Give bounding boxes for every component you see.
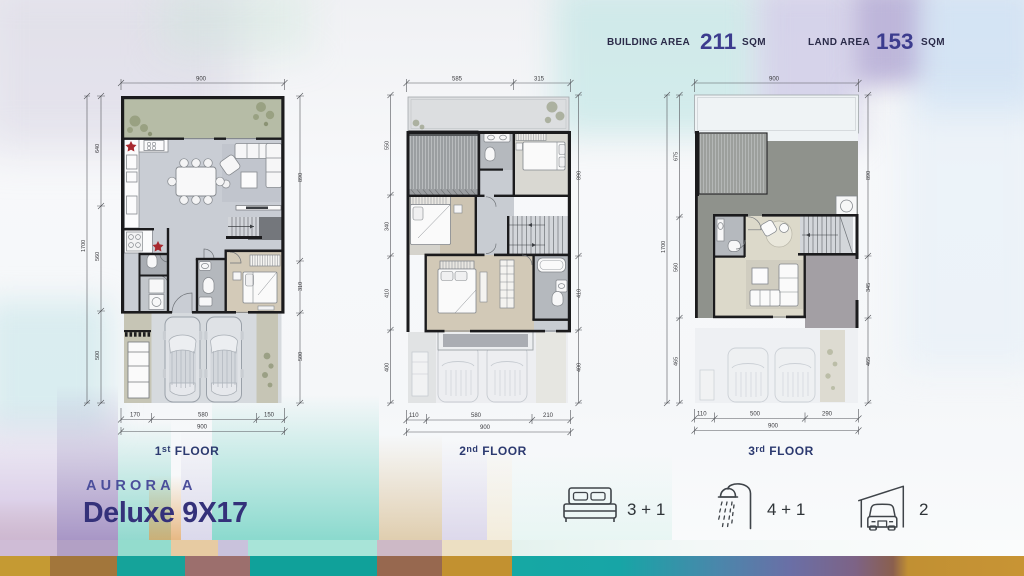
svg-text:900: 900 xyxy=(196,77,207,83)
svg-text:900: 900 xyxy=(480,425,491,431)
svg-text:315: 315 xyxy=(534,77,545,83)
svg-text:310: 310 xyxy=(298,282,304,291)
svg-text:1700: 1700 xyxy=(661,241,667,253)
svg-text:580: 580 xyxy=(471,413,482,419)
svg-text:890: 890 xyxy=(298,173,304,182)
svg-text:290: 290 xyxy=(822,412,833,418)
svg-text:1700: 1700 xyxy=(81,240,87,252)
svg-text:550: 550 xyxy=(385,141,391,150)
svg-text:580: 580 xyxy=(198,413,209,419)
svg-text:900: 900 xyxy=(197,425,208,431)
svg-text:900: 900 xyxy=(769,77,780,83)
svg-text:150: 150 xyxy=(264,413,275,419)
svg-text:400: 400 xyxy=(385,363,391,372)
svg-text:585: 585 xyxy=(452,77,463,83)
svg-text:110: 110 xyxy=(697,412,707,418)
svg-text:210: 210 xyxy=(543,413,554,419)
svg-text:170: 170 xyxy=(130,413,141,419)
svg-text:465: 465 xyxy=(674,357,680,366)
svg-text:560: 560 xyxy=(95,252,101,261)
svg-text:500: 500 xyxy=(95,351,101,360)
svg-text:900: 900 xyxy=(768,424,779,430)
svg-text:890: 890 xyxy=(577,171,583,180)
svg-text:400: 400 xyxy=(577,363,583,372)
svg-text:500: 500 xyxy=(298,352,304,361)
svg-text:110: 110 xyxy=(409,413,419,419)
svg-text:890: 890 xyxy=(866,171,872,180)
svg-text:340: 340 xyxy=(385,222,391,231)
svg-text:560: 560 xyxy=(674,263,680,272)
svg-text:465: 465 xyxy=(866,357,872,366)
svg-text:675: 675 xyxy=(674,152,680,161)
svg-text:345: 345 xyxy=(866,283,872,292)
svg-text:640: 640 xyxy=(95,144,101,153)
svg-text:410: 410 xyxy=(385,289,391,298)
svg-text:410: 410 xyxy=(577,289,583,298)
svg-text:500: 500 xyxy=(750,412,761,418)
